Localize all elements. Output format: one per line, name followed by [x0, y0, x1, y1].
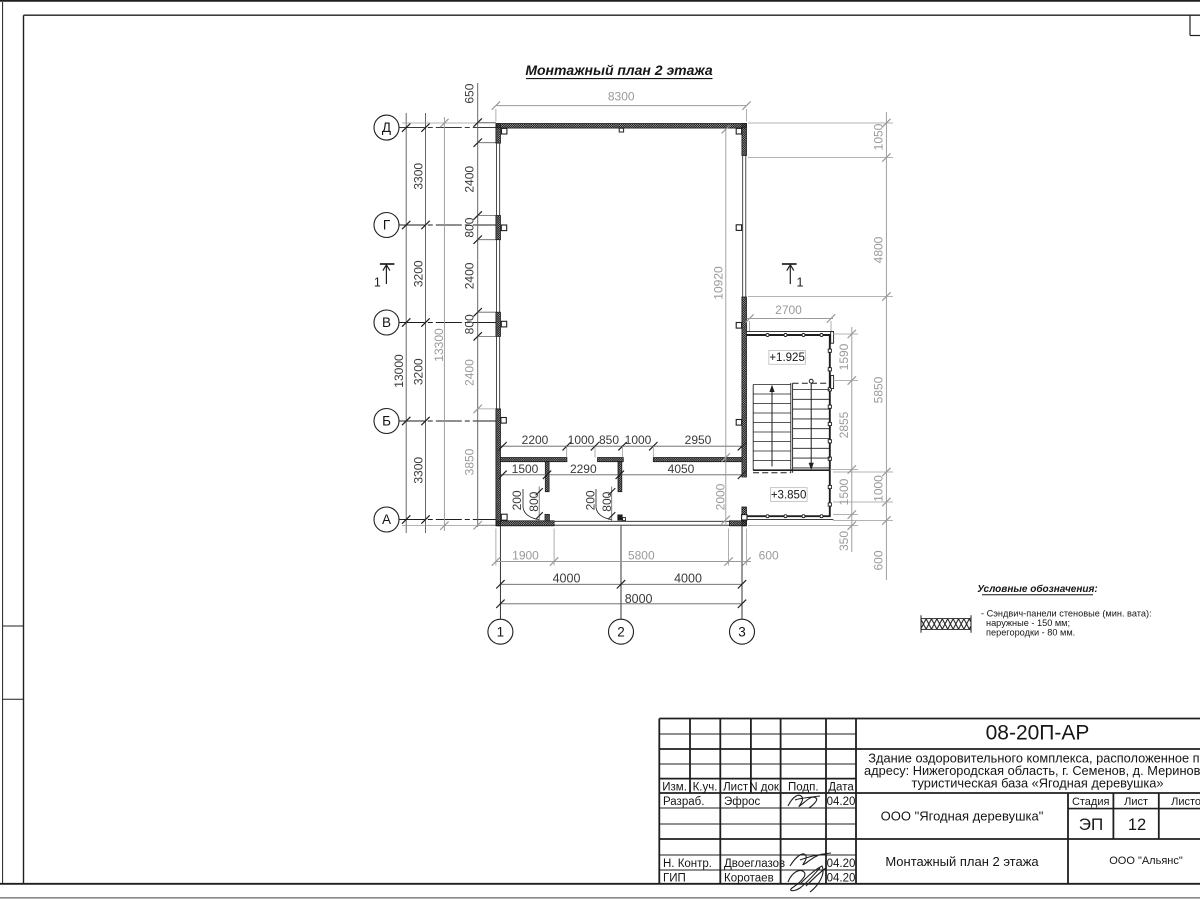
- svg-text:1500: 1500: [837, 478, 851, 505]
- svg-text:04.20: 04.20: [827, 796, 856, 808]
- svg-text:08-20П-АР: 08-20П-АР: [986, 722, 1090, 745]
- svg-text:3300: 3300: [412, 457, 426, 484]
- svg-text:туристическая база «Ягодная де: туристическая база «Ягодная деревушка»: [912, 776, 1164, 791]
- svg-text:Стадия: Стадия: [1072, 796, 1110, 808]
- svg-text:2400: 2400: [463, 262, 477, 289]
- svg-text:2950: 2950: [685, 433, 712, 447]
- svg-text:перегородки - 80 мм.: перегородки - 80 мм.: [986, 627, 1075, 637]
- svg-text:1: 1: [797, 275, 804, 289]
- svg-text:600: 600: [871, 550, 885, 570]
- svg-text:13000: 13000: [392, 354, 406, 388]
- svg-text:800: 800: [600, 491, 614, 511]
- svg-text:3850: 3850: [463, 448, 477, 475]
- svg-text:3: 3: [738, 624, 746, 639]
- svg-text:Листов: Листов: [1171, 796, 1200, 808]
- svg-text:Монтажный план 2 этажа: Монтажный план 2 этажа: [885, 854, 1039, 869]
- svg-text:1: 1: [497, 624, 505, 639]
- svg-text:+3.850: +3.850: [771, 489, 807, 501]
- svg-text:650: 650: [463, 83, 477, 103]
- svg-text:Лист: Лист: [1124, 796, 1148, 808]
- svg-text:Двоеглазов: Двоеглазов: [724, 858, 785, 870]
- svg-text:Эфрос: Эфрос: [724, 796, 761, 808]
- svg-text:1000: 1000: [871, 475, 885, 502]
- svg-text:2000: 2000: [714, 483, 728, 510]
- svg-text:ООО "Ягодная деревушка": ООО "Ягодная деревушка": [881, 809, 1044, 824]
- svg-text:200: 200: [510, 490, 524, 510]
- svg-text:2200: 2200: [522, 433, 549, 447]
- svg-text:8000: 8000: [625, 592, 653, 606]
- svg-text:600: 600: [759, 549, 779, 563]
- svg-text:1050: 1050: [871, 123, 885, 150]
- svg-text:К.уч.: К.уч.: [693, 781, 718, 793]
- svg-text:2400: 2400: [463, 359, 477, 386]
- svg-text:Б: Б: [382, 414, 391, 429]
- svg-text:1000: 1000: [625, 433, 652, 447]
- svg-text:Коротаев: Коротаев: [724, 872, 774, 884]
- svg-text:ЭП: ЭП: [1079, 815, 1103, 834]
- svg-text:10920: 10920: [712, 266, 726, 300]
- svg-text:Монтажный план 2 этажа: Монтажный план 2 этажа: [525, 62, 713, 78]
- svg-text:ГИП: ГИП: [663, 872, 686, 884]
- svg-text:Подп.: Подп.: [788, 781, 819, 793]
- svg-text:4050: 4050: [668, 462, 695, 476]
- svg-text:13300: 13300: [432, 328, 446, 362]
- svg-text:Дата: Дата: [828, 781, 854, 793]
- svg-text:1900: 1900: [512, 549, 539, 563]
- svg-text:04.20: 04.20: [827, 858, 856, 870]
- svg-text:350: 350: [837, 531, 851, 551]
- svg-text:2855: 2855: [837, 411, 851, 438]
- svg-text:5800: 5800: [628, 549, 655, 563]
- svg-text:Условные обозначения:: Условные обозначения:: [977, 583, 1097, 595]
- svg-text:800: 800: [463, 217, 477, 237]
- svg-text:Разраб.: Разраб.: [663, 796, 704, 808]
- svg-text:8300: 8300: [608, 90, 635, 104]
- svg-text:1590: 1590: [837, 343, 851, 370]
- svg-text:4000: 4000: [553, 571, 581, 585]
- svg-text:ООО "Альянс": ООО "Альянс": [1109, 855, 1183, 867]
- svg-text:12: 12: [1128, 816, 1146, 834]
- svg-text:В: В: [382, 315, 391, 330]
- svg-text:+1.925: +1.925: [769, 352, 805, 364]
- svg-text:N док.: N док.: [749, 781, 782, 793]
- svg-text:А: А: [382, 512, 391, 527]
- svg-text:2400: 2400: [463, 166, 477, 193]
- svg-text:04.20: 04.20: [827, 872, 856, 884]
- svg-text:2: 2: [617, 624, 625, 639]
- svg-text:1500: 1500: [512, 462, 539, 476]
- svg-text:Д: Д: [382, 120, 391, 135]
- svg-text:800: 800: [463, 314, 477, 334]
- svg-text:Изм.: Изм.: [662, 781, 687, 793]
- svg-text:4800: 4800: [871, 236, 885, 263]
- svg-text:Н. Контр.: Н. Контр.: [663, 858, 712, 870]
- svg-text:800: 800: [527, 491, 541, 511]
- svg-text:200: 200: [584, 490, 598, 510]
- svg-text:3200: 3200: [412, 260, 426, 287]
- svg-text:850: 850: [599, 433, 619, 447]
- svg-text:Лист: Лист: [723, 781, 749, 793]
- svg-text:Г: Г: [383, 218, 391, 233]
- svg-text:1: 1: [374, 275, 381, 289]
- svg-text:наружные - 150 мм;: наружные - 150 мм;: [986, 618, 1070, 628]
- svg-text:1000: 1000: [568, 433, 595, 447]
- svg-text:2290: 2290: [570, 462, 597, 476]
- svg-text:3200: 3200: [412, 358, 426, 385]
- svg-text:5850: 5850: [871, 376, 885, 403]
- svg-text:4000: 4000: [674, 571, 702, 585]
- svg-text:3300: 3300: [412, 163, 426, 190]
- svg-text:2700: 2700: [775, 303, 802, 317]
